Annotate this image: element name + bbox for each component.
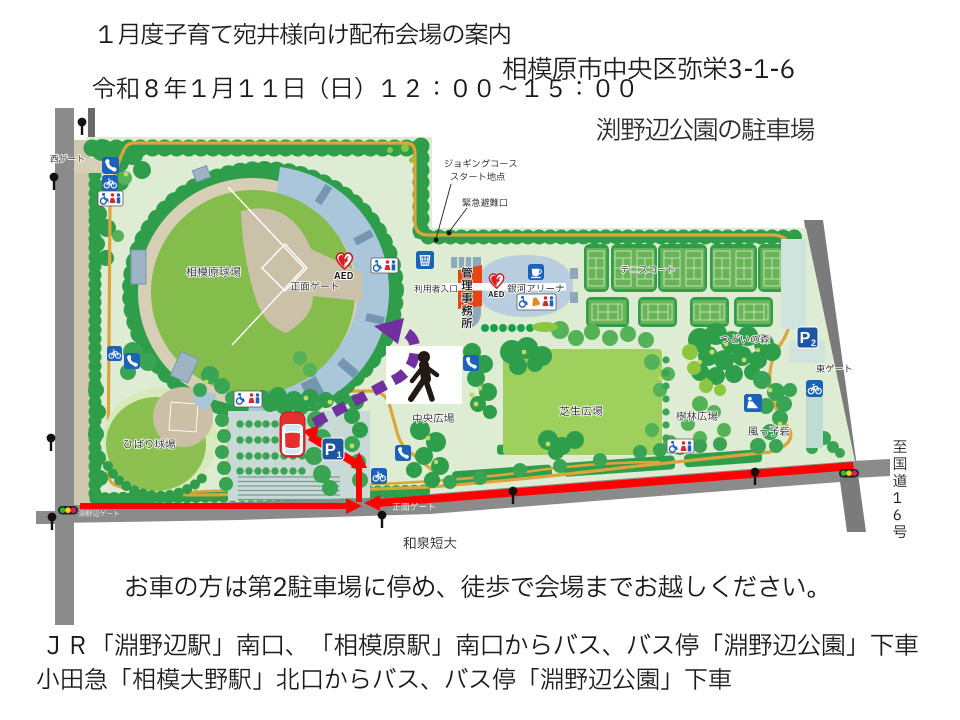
svg-text:2: 2 [811,338,816,348]
svg-text:P: P [325,440,336,459]
svg-text:P: P [800,330,811,347]
svg-text:1: 1 [337,449,342,460]
